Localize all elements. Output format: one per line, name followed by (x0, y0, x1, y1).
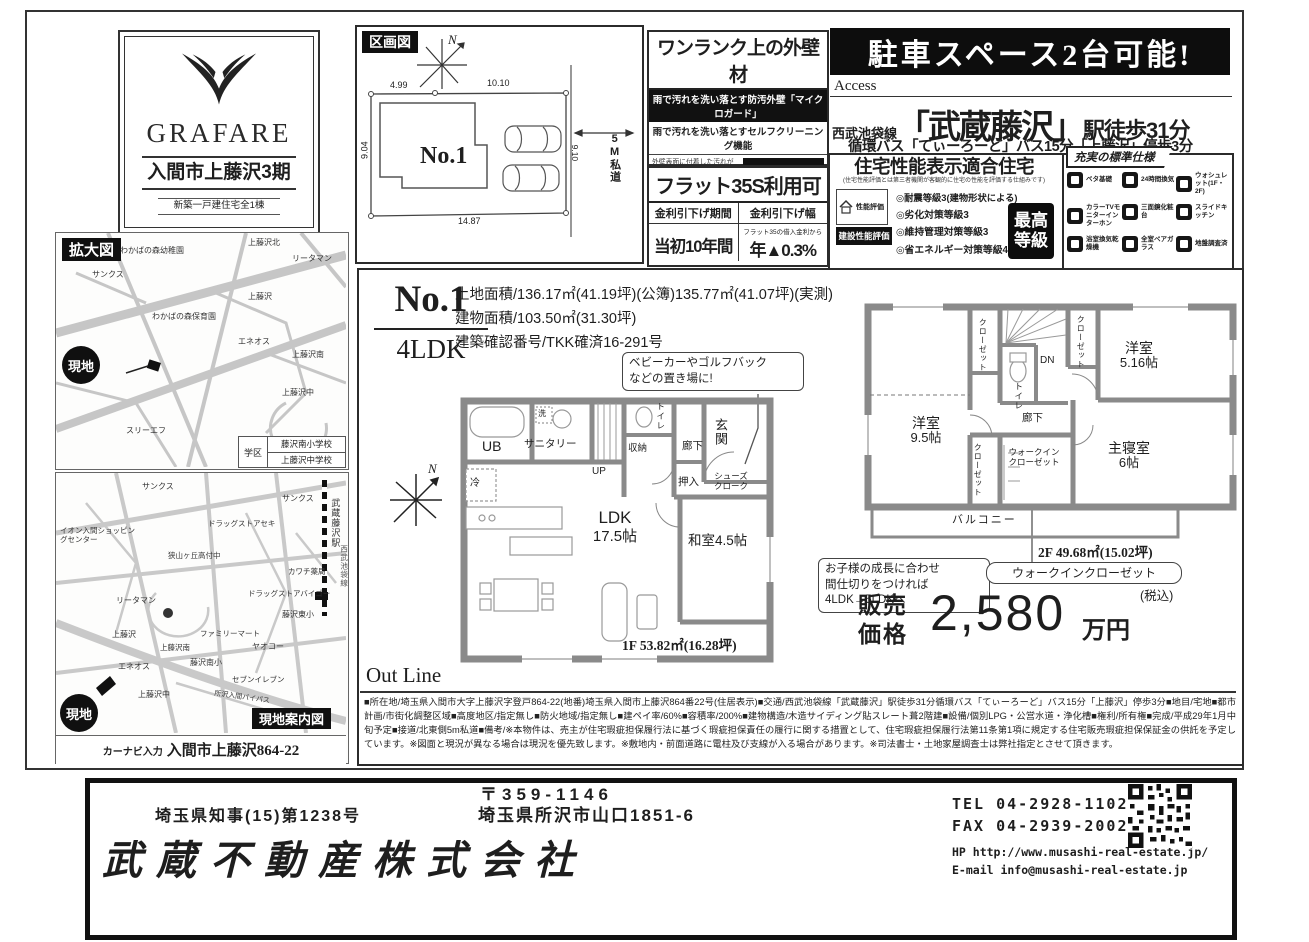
room-label-master-line1: 主寝室 (1098, 440, 1160, 456)
flat35-rate-value: 年▲0.3% (739, 236, 828, 261)
microguard-band-top (743, 158, 824, 165)
dim-bottom: 14.87 (458, 216, 481, 226)
exterior-title: ワンランク上の外壁材 (649, 32, 827, 90)
top-grade-badge: 最高 等級 (1008, 203, 1054, 259)
room-label-closet: クローゼット (978, 318, 987, 372)
exterior-line: 雨で汚れを洗い落とすセルフクリーニング機能 (649, 122, 827, 155)
map-label: 上藤沢中 (138, 690, 170, 699)
navi-address: 入間市上藤沢864-22 (167, 739, 300, 760)
school-district-table: 学区 藤沢南小学校 上藤沢中学校 (238, 436, 346, 468)
map-label: 上藤沢北 (248, 238, 280, 247)
building-area: 建物面積/103.50㎡(31.30坪) (455, 311, 636, 328)
navi-label: カーナビ入力 (103, 743, 163, 758)
room-label-west5-line2: 5.16帖 (1108, 356, 1170, 371)
exterior-strip: 雨で汚れを洗い落とす防汚外壁「マイクロガード」 (649, 90, 827, 122)
spec-item: 24時間換気 (1141, 176, 1174, 184)
footer-tel: TEL 04-2928-1102 (952, 796, 1129, 813)
map-label: 上藤沢 (112, 630, 136, 639)
access-label: Access (834, 78, 876, 95)
map-label: 藤沢東小 (282, 610, 314, 619)
performance-item: ◎劣化対策等級3 (896, 207, 1012, 225)
map-label: 上藤沢 (248, 292, 272, 301)
compass-n-label: N (428, 462, 437, 477)
flat35-col2-header: 金利引下げ幅 (739, 203, 828, 223)
brand-name: GRAFARE (120, 118, 318, 149)
flat35-col1-header: 金利引下げ期間 (649, 203, 739, 223)
map-label: リータマン (116, 596, 156, 605)
specs-title-ribbon: 充実の標準仕様 (1066, 146, 1173, 168)
performance-item: ◎耐震等級3(建物形状による) (896, 190, 1012, 207)
flat35-box: フラット35S利用可 金利引下げ期間 金利引下げ幅 当初10年間 フラット35の… (647, 166, 829, 267)
room-label-toilet: トイレ (655, 402, 665, 431)
map-label: ヤオコー (252, 642, 284, 651)
project-name: 入間市上藤沢3期 (142, 156, 296, 190)
room-label-storage: 収納 (628, 444, 647, 455)
intercom-icon (1067, 208, 1083, 224)
room-label-master-line2: 6帖 (1098, 456, 1160, 471)
map-label: ドラッグストアバイゴー (248, 590, 330, 599)
map-label: 藤沢南小 (190, 658, 222, 667)
footer-license: 埼玉県知事(15)第1238号 (155, 808, 361, 826)
map-label: リータマン (292, 254, 332, 263)
map-label: サンクス (92, 270, 124, 279)
map-label: わかばの森保育園 (152, 312, 216, 321)
brand-logo-frame: GRAFARE 入間市上藤沢3期 新築一戸建住宅全1棟 (118, 30, 320, 234)
access-underline (830, 96, 1232, 97)
site-badge-label: 現地 (68, 356, 94, 375)
price-unit: 万円 (1082, 617, 1130, 645)
exterior-wall-box: ワンランク上の外壁材 雨で汚れを洗い落とす防汚外壁「マイクロガード」 雨で汚れを… (647, 30, 829, 166)
site-badge-label: 現地 (66, 704, 92, 723)
outline-title: Out Line (366, 663, 441, 687)
stairs-dn-label: DN (1040, 355, 1054, 367)
railway-name-label: 西武池袋線 (339, 545, 348, 588)
spec-item: スライドキッチン (1195, 204, 1232, 220)
room-label-west5: 洋室 5.16帖 (1108, 340, 1170, 371)
plot-lot-number: No.1 (420, 143, 467, 171)
footer-email: E-mail info@musashi-real-estate.jp (952, 864, 1187, 877)
outline-text: ■所在地/埼玉県入間市大字上藤沢字登戸864-22(地番)埼玉県入間市上藤沢86… (364, 696, 1236, 752)
ground-survey-icon (1176, 236, 1192, 252)
bath-dryer-icon (1067, 236, 1083, 252)
footer-address: 埼玉県所沢市山口1851-6 (478, 806, 695, 826)
map-label: セブンイレブン (232, 676, 285, 685)
stroller-callout: ベビーカーやゴルフバック などの置き場に! (622, 352, 804, 391)
price-label-line2: 価格 (858, 621, 908, 647)
permit-number: 建築確認番号/TKK確済16-291号 (455, 335, 663, 352)
parking-banner: 駐車スペース2台可能! (830, 28, 1230, 75)
room-label-fridge: 冷 (470, 478, 480, 490)
performance-item: ◎維持管理対策等級3 (896, 224, 1012, 242)
room-label-oshiire: 押入 (678, 476, 699, 488)
room-label-entrance: 玄関 (712, 418, 727, 446)
build-eval-label: 建設性能評価 (838, 230, 889, 242)
room-label-ldk-line2: 17.5帖 (580, 528, 650, 545)
map-label: エネオス (238, 337, 270, 346)
wic-callout-text: ウォークインクローゼット (1012, 566, 1156, 580)
spec-item: 全室ペアガラス (1141, 236, 1178, 252)
school-elementary: 藤沢南小学校 (268, 437, 345, 453)
plot-plan-drawing (357, 27, 638, 258)
map-label: イオン入間ショッピングセンター (60, 527, 138, 544)
wings-icon (175, 48, 263, 110)
room-label-shoes: シューズ クローク (714, 472, 748, 492)
project-subtitle: 新築一戸建住宅全1棟 (158, 198, 280, 215)
top-grade-line1: 最高 (1014, 211, 1048, 231)
lot-number-rule (374, 328, 488, 330)
room-label-wic-line2: クローゼット (1000, 458, 1068, 468)
railway-station-label: 武蔵藤沢駅 (330, 498, 340, 548)
washlet-icon (1176, 176, 1192, 192)
room-label-west5-line1: 洋室 (1108, 340, 1170, 356)
top-grade-line2: 等級 (1014, 231, 1048, 251)
floor2-area: 2F 49.68㎡(15.02坪) (1038, 545, 1153, 561)
spec-item: カラーTVモニターインターホン (1086, 204, 1123, 228)
floorplan-compass (386, 470, 446, 530)
spec-item: 三面鏡化粧台 (1141, 204, 1178, 220)
house-icon (838, 199, 854, 215)
foundation-icon (1067, 172, 1083, 188)
room-label-west9-line2: 9.5帖 (895, 431, 957, 446)
spec-item: 地盤調査済 (1195, 240, 1228, 248)
navi-strip: カーナビ入力 入間市上藤沢864-22 (56, 735, 346, 765)
private-road-label: 5M私道 (608, 133, 621, 183)
company-name: 武蔵不動産株式会社 (102, 838, 588, 884)
floor1-area: 1F 53.82㎡(16.28坪) (622, 638, 737, 654)
performance-item: ◎省エネルギー対策等級4 (896, 242, 1012, 260)
outline-rule (360, 691, 1236, 693)
price-label-line1: 販売 (858, 592, 908, 618)
map-label: 狭山ヶ丘高付中 (168, 552, 221, 561)
guide-map-roads (56, 473, 346, 733)
enlarged-map-title: 拡大図 (62, 238, 121, 261)
flat35-rate-note: フラット35の借入金利から (739, 224, 828, 236)
stroller-callout-line2: などの置き場に! (629, 372, 797, 388)
room-label-washitsu: 和室4.5帖 (688, 533, 747, 549)
parking-banner-text: 駐車スペース2台可能! (868, 30, 1192, 74)
dim-top-right: 10.10 (487, 78, 510, 88)
room-label-closet: クローゼット (1076, 315, 1085, 369)
plot-plan-title: 区画図 (362, 31, 418, 53)
map-label: 上藤沢南 (292, 350, 324, 359)
dim-top-left: 4.99 (390, 80, 408, 90)
flyer-sheet: GRAFARE 入間市上藤沢3期 新築一戸建住宅全1棟 拡大図 わかばの森幼稚園… (0, 0, 1309, 942)
dim-right: 9.10 (569, 145, 579, 162)
room-label-ldk: LDK 17.5帖 (580, 508, 650, 545)
mirror-vanity-icon (1122, 204, 1138, 220)
room-label-ub: UB (482, 438, 501, 454)
balcony-label: バルコニー (952, 514, 1017, 527)
map-label: サンクス (282, 494, 314, 503)
dim-left: 9.04 (360, 141, 370, 159)
footer-postal: 〒359-1146 (480, 785, 613, 805)
school-junior-high: 上藤沢中学校 (268, 453, 345, 468)
site-badge: 現地 (62, 346, 100, 384)
map-label: サンクス (142, 482, 174, 491)
room-label-sanitary: サニタリー (524, 438, 577, 450)
school-district-header: 学区 (239, 437, 268, 467)
map-label: 上藤沢中 (282, 388, 314, 397)
room-label-master: 主寝室 6帖 (1098, 440, 1160, 471)
map-label: ファミリーマート (200, 630, 260, 639)
map-label: カワチ薬局 (288, 568, 326, 577)
performance-title: 住宅性能表示適合住宅 (830, 156, 1058, 177)
map-label: 上藤沢南 (160, 644, 190, 653)
flat35-title: フラット35S利用可 (649, 168, 827, 203)
room-label-shoes-line2: クローク (714, 482, 748, 492)
ventilation-icon (1122, 172, 1138, 188)
pair-glass-icon (1122, 236, 1138, 252)
build-eval-badge: 建設性能評価 (836, 227, 892, 245)
footer-fax: FAX 04-2939-2002 (952, 818, 1129, 835)
room-label-ldk-line1: LDK (580, 508, 650, 528)
map-label: わかばの森幼稚園 (120, 246, 184, 255)
map-label: エネオス (118, 662, 150, 671)
site-badge: 現地 (60, 694, 98, 732)
stroller-callout-line1: ベビーカーやゴルフバック (629, 356, 797, 372)
room-label-west9: 洋室 9.5帖 (895, 415, 957, 446)
price-amount: 2,580 (930, 585, 1065, 643)
guide-map-title: 現地案内図 (252, 708, 331, 729)
design-eval-label: 性能評価 (856, 202, 884, 212)
slide-kitchen-icon (1176, 204, 1192, 220)
room-label-hall: 廊下 (1022, 412, 1043, 424)
room-label-wash: 洗 (538, 409, 546, 418)
stairs-up-label: UP (592, 466, 606, 478)
room-label-hall: 廊下 (682, 440, 703, 452)
spec-item: ウォシュレット(1F・2F) (1195, 172, 1232, 196)
performance-subtitle: (住宅性能評価とは第三者機関が客観的に住宅の性能を評価する仕組みです) (830, 178, 1058, 185)
flat35-period-value: 当初10年間 (649, 224, 739, 261)
qr-code (1128, 784, 1192, 848)
grow-callout-line1: お子様の成長に合わせ (825, 562, 983, 578)
spec-item: 浴室換気乾燥機 (1086, 236, 1123, 252)
design-eval-badge: 性能評価 (836, 189, 888, 225)
land-area: 土地面積/136.17㎡(41.19坪)(公簿)135.77㎡(41.07坪)(… (455, 287, 833, 304)
price-tax-note: (税込) (1140, 589, 1173, 603)
compass-n-label: N (448, 33, 457, 48)
specs-title: 充実の標準仕様 (1074, 152, 1155, 164)
room-label-wic: ウォークイン クローゼット (1000, 448, 1068, 468)
wic-callout: ウォークインクローゼット (986, 562, 1182, 584)
map-label: スリーエフ (126, 426, 166, 435)
spec-item: ベタ基礎 (1086, 176, 1112, 184)
performance-items: ◎耐震等級3(建物形状による) ◎劣化対策等級3 ◎維持管理対策等級3 ◎省エネ… (896, 190, 1012, 260)
room-label-west9-line1: 洋室 (895, 415, 957, 431)
room-label-toilet: トイレ (1013, 382, 1023, 411)
map-label: ドラッグストアセキ (208, 520, 275, 529)
room-label-closet: クローゼット (973, 443, 982, 497)
